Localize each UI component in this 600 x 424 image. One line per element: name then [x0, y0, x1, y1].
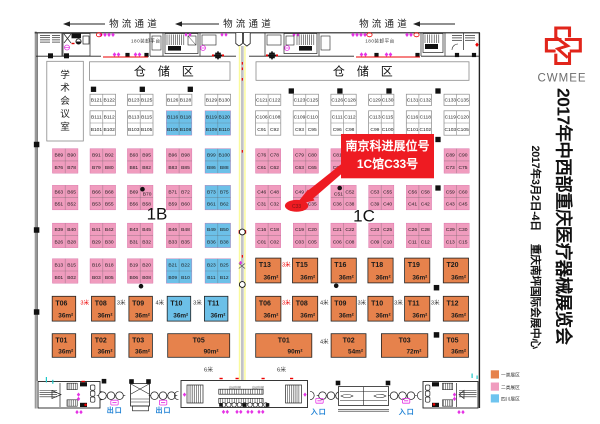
svg-text:B73: B73	[207, 189, 216, 195]
svg-text:36m²: 36m²	[300, 313, 315, 320]
svg-text:T03: T03	[132, 338, 144, 345]
svg-text:B88: B88	[220, 165, 229, 171]
svg-text:B70: B70	[143, 191, 152, 197]
svg-text:C16: C16	[257, 227, 266, 233]
svg-text:C08: C08	[345, 239, 354, 245]
svg-text:C106: C106	[256, 115, 268, 121]
svg-text:B18: B18	[105, 263, 114, 269]
svg-text:6米: 6米	[277, 365, 286, 373]
svg-text:54m²: 54m²	[348, 349, 363, 356]
svg-text:B126: B126	[167, 98, 179, 104]
svg-text:90m²: 90m²	[288, 349, 303, 356]
svg-text:B69: B69	[129, 189, 138, 195]
svg-text:B35: B35	[181, 239, 190, 245]
svg-text:3米: 3米	[80, 298, 89, 306]
svg-text:C29: C29	[446, 227, 455, 233]
svg-text:C26: C26	[408, 227, 417, 233]
svg-text:C105: C105	[457, 127, 469, 133]
svg-text:T15: T15	[296, 262, 308, 269]
svg-text:72m²: 72m²	[406, 349, 421, 356]
svg-text:T18: T18	[371, 262, 383, 269]
svg-text:C126: C126	[331, 98, 343, 104]
svg-text:C109: C109	[294, 115, 306, 121]
svg-text:3米: 3米	[282, 298, 291, 306]
svg-text:B105: B105	[141, 127, 153, 133]
svg-text:C61: C61	[257, 165, 266, 171]
svg-text:C52: C52	[345, 189, 354, 195]
svg-text:C98: C98	[345, 127, 354, 133]
svg-text:C56: C56	[408, 189, 417, 195]
svg-text:二类展区: 二类展区	[501, 384, 520, 391]
svg-text:C11: C11	[408, 239, 417, 245]
svg-text:C12: C12	[421, 239, 430, 245]
svg-text:B60: B60	[181, 202, 190, 208]
svg-text:B02: B02	[67, 275, 76, 281]
svg-text:B80: B80	[105, 165, 114, 171]
svg-text:B81: B81	[129, 165, 138, 171]
svg-text:T10: T10	[371, 300, 383, 307]
svg-text:1C: 1C	[353, 207, 375, 226]
svg-text:C75: C75	[459, 165, 468, 171]
svg-text:C108: C108	[269, 115, 281, 121]
svg-text:C30: C30	[459, 227, 468, 233]
svg-text:B56: B56	[129, 202, 138, 208]
svg-text:B50: B50	[220, 227, 229, 233]
svg-text:B15: B15	[67, 263, 76, 269]
svg-text:B68: B68	[105, 189, 114, 195]
svg-text:C125: C125	[306, 98, 318, 104]
svg-text:C43: C43	[446, 202, 455, 208]
svg-text:B108: B108	[180, 127, 192, 133]
svg-text:自动扶梯: 自动扶梯	[252, 384, 264, 389]
svg-text:90m²: 90m²	[204, 349, 219, 356]
svg-text:C33: C33	[292, 204, 301, 210]
svg-text:180装卸平台: 180装卸平台	[365, 38, 395, 45]
svg-text:C06: C06	[333, 239, 342, 245]
svg-text:C31: C31	[257, 202, 266, 208]
svg-text:B31: B31	[129, 239, 138, 245]
svg-text:B122: B122	[103, 98, 115, 104]
svg-text:B89: B89	[54, 153, 63, 159]
svg-text:B29: B29	[92, 239, 101, 245]
svg-text:C25: C25	[383, 227, 392, 233]
svg-text:B99: B99	[207, 153, 216, 159]
svg-text:B11: B11	[207, 275, 216, 281]
svg-text:南京科进展位号: 南京科进展位号	[345, 138, 429, 153]
svg-text:T05: T05	[447, 338, 459, 345]
svg-text:36m²: 36m²	[135, 313, 150, 320]
svg-text:C48: C48	[270, 189, 279, 195]
svg-text:C65: C65	[308, 165, 317, 171]
svg-text:B21: B21	[168, 263, 177, 269]
svg-text:C49: C49	[295, 189, 304, 195]
svg-text:C03: C03	[295, 239, 304, 245]
svg-text:C32: C32	[270, 202, 279, 208]
svg-text:36m²: 36m²	[98, 313, 113, 320]
svg-text:物流通道: 物流通道	[109, 18, 160, 30]
svg-text:T20: T20	[447, 262, 459, 269]
svg-text:B76: B76	[54, 165, 63, 171]
svg-text:B20: B20	[142, 263, 151, 269]
svg-text:C99: C99	[370, 127, 379, 133]
svg-text:36m²: 36m²	[376, 313, 391, 320]
svg-text:C09: C09	[370, 239, 379, 245]
svg-text:C100: C100	[382, 127, 394, 133]
svg-text:C129: C129	[369, 98, 381, 104]
svg-text:C81: C81	[333, 153, 342, 159]
svg-text:B10: B10	[181, 275, 190, 281]
svg-text:B30: B30	[105, 239, 114, 245]
svg-text:B113: B113	[128, 115, 139, 121]
svg-text:C13: C13	[446, 239, 455, 245]
svg-text:C73: C73	[446, 165, 455, 171]
svg-text:B53: B53	[92, 202, 101, 208]
svg-text:B26: B26	[54, 239, 63, 245]
svg-text:C10: C10	[383, 239, 392, 245]
svg-text:C120: C120	[457, 115, 469, 121]
svg-text:T03: T03	[399, 338, 411, 345]
svg-text:B106: B106	[167, 127, 179, 133]
svg-text:4米: 4米	[320, 298, 329, 306]
svg-text:术: 术	[60, 82, 70, 94]
svg-text:C89: C89	[446, 153, 455, 159]
svg-text:T06: T06	[55, 300, 67, 307]
svg-text:36m²: 36m²	[98, 349, 113, 356]
svg-text:B120: B120	[218, 115, 230, 121]
svg-text:4米: 4米	[320, 338, 329, 346]
svg-text:B78: B78	[67, 165, 76, 171]
svg-text:B41: B41	[92, 227, 101, 233]
svg-text:C132: C132	[419, 98, 431, 104]
svg-text:B101: B101	[91, 127, 103, 133]
svg-text:36m²: 36m²	[451, 274, 466, 281]
svg-text:C112: C112	[344, 115, 356, 121]
svg-text:B48: B48	[181, 227, 190, 233]
svg-text:C18: C18	[270, 227, 279, 233]
svg-text:C135: C135	[457, 98, 469, 104]
svg-text:B03: B03	[92, 275, 101, 281]
svg-text:C19: C19	[295, 227, 304, 233]
svg-text:C116: C116	[407, 115, 419, 121]
svg-text:T09: T09	[132, 300, 144, 307]
svg-text:会: 会	[60, 95, 70, 107]
svg-text:入口: 入口	[398, 408, 415, 416]
svg-text:CWMEE: CWMEE	[537, 73, 586, 85]
svg-text:T02: T02	[95, 338, 107, 345]
svg-text:B119: B119	[206, 115, 217, 121]
svg-text:C90: C90	[459, 153, 468, 159]
svg-text:36m²: 36m²	[376, 274, 391, 281]
svg-text:36m²: 36m²	[263, 274, 278, 281]
svg-text:B100: B100	[218, 153, 230, 159]
svg-text:B22: B22	[181, 263, 190, 269]
svg-text:36m²: 36m²	[300, 274, 315, 281]
svg-text:B72: B72	[181, 189, 190, 195]
svg-text:180装卸平台: 180装卸平台	[131, 38, 161, 45]
svg-text:B109: B109	[206, 127, 218, 133]
svg-text:C28: C28	[421, 227, 430, 233]
svg-text:B61: B61	[207, 202, 216, 208]
svg-text:C110: C110	[307, 115, 319, 121]
svg-text:C119: C119	[445, 115, 457, 121]
svg-text:C53: C53	[370, 189, 379, 195]
svg-text:C21: C21	[333, 227, 342, 233]
svg-text:B82: B82	[142, 165, 151, 171]
svg-text:B86: B86	[207, 165, 216, 171]
svg-text:B65: B65	[67, 189, 76, 195]
svg-text:C80: C80	[308, 153, 317, 159]
svg-text:T19: T19	[408, 262, 420, 269]
svg-text:C91: C91	[257, 127, 266, 133]
svg-text:C111: C111	[332, 115, 343, 121]
svg-text:B110: B110	[219, 127, 230, 133]
svg-text:C131: C131	[407, 98, 419, 104]
svg-text:B123: B123	[128, 98, 140, 104]
svg-text:36m²: 36m²	[173, 313, 188, 320]
svg-text:C113: C113	[369, 115, 381, 121]
svg-text:B40: B40	[67, 227, 76, 233]
svg-text:C101: C101	[407, 127, 419, 133]
svg-text:B63: B63	[54, 189, 63, 195]
svg-text:T10: T10	[170, 300, 182, 307]
svg-text:一类展区: 一类展区	[501, 372, 520, 379]
svg-text:3米: 3米	[117, 298, 126, 306]
svg-text:B13: B13	[54, 263, 63, 269]
svg-text:B38: B38	[220, 239, 229, 245]
svg-text:36m²: 36m²	[339, 313, 354, 320]
svg-text:B09: B09	[168, 275, 177, 281]
svg-text:B55: B55	[105, 202, 114, 208]
svg-text:B116: B116	[167, 115, 178, 121]
svg-text:B46: B46	[168, 227, 177, 233]
svg-text:B92: B92	[105, 153, 114, 159]
svg-text:B115: B115	[141, 115, 152, 121]
svg-text:C96: C96	[333, 127, 342, 133]
svg-text:C63: C63	[295, 165, 304, 171]
svg-text:T01: T01	[278, 338, 290, 345]
svg-text:3米: 3米	[282, 261, 291, 269]
svg-text:C05: C05	[308, 239, 317, 245]
svg-text:物流通道: 物流通道	[359, 18, 410, 30]
svg-text:36m²: 36m²	[412, 313, 427, 320]
svg-text:T06: T06	[259, 300, 271, 307]
svg-text:B71: B71	[168, 189, 177, 195]
svg-text:3米: 3米	[193, 298, 202, 306]
svg-text:C41: C41	[408, 202, 417, 208]
svg-text:B90: B90	[67, 153, 76, 159]
svg-text:B36: B36	[207, 239, 216, 245]
svg-text:T05: T05	[193, 338, 205, 345]
svg-text:36m²: 36m²	[210, 313, 225, 320]
svg-text:B05: B05	[105, 275, 114, 281]
svg-text:3米: 3米	[431, 298, 440, 306]
svg-text:B129: B129	[206, 98, 218, 104]
svg-text:2017年中西部重庆医疗器械展览会: 2017年中西部重庆医疗器械展览会	[554, 88, 574, 345]
svg-text:C95: C95	[308, 127, 317, 133]
svg-text:C60: C60	[459, 189, 468, 195]
svg-text:C46: C46	[257, 189, 266, 195]
svg-text:C35: C35	[308, 202, 317, 208]
svg-text:B28: B28	[67, 239, 76, 245]
svg-text:2017年3月2日-4日 重庆南坪国际会展中心: 2017年3月2日-4日 重庆南坪国际会展中心	[529, 146, 543, 350]
svg-text:B01: B01	[54, 275, 63, 281]
svg-text:C130: C130	[382, 98, 394, 104]
svg-text:C79: C79	[295, 153, 304, 159]
svg-text:自动扶梯: 自动扶梯	[229, 384, 241, 389]
svg-text:T08: T08	[296, 300, 308, 307]
svg-text:B59: B59	[168, 202, 177, 208]
svg-text:B49: B49	[207, 227, 216, 233]
svg-text:仓 储 区: 仓 储 区	[134, 64, 198, 79]
svg-text:C118: C118	[420, 115, 432, 121]
svg-text:C55: C55	[383, 189, 392, 195]
svg-text:3米: 3米	[357, 298, 366, 306]
svg-text:B98: B98	[181, 153, 190, 159]
svg-text:T11: T11	[208, 300, 220, 307]
svg-text:B83: B83	[168, 165, 177, 171]
svg-text:B33: B33	[168, 239, 177, 245]
svg-text:B93: B93	[129, 153, 138, 159]
svg-text:C59: C59	[446, 189, 455, 195]
svg-text:B85: B85	[181, 165, 190, 171]
svg-text:B16: B16	[92, 263, 101, 269]
svg-text:B42: B42	[105, 227, 114, 233]
svg-text:36m²: 36m²	[58, 313, 73, 320]
svg-text:1B: 1B	[147, 205, 168, 224]
svg-text:B62: B62	[220, 202, 229, 208]
svg-text:B79: B79	[92, 165, 101, 171]
svg-text:B52: B52	[67, 202, 76, 208]
svg-text:C36: C36	[333, 202, 342, 208]
svg-text:C22: C22	[345, 227, 354, 233]
svg-text:T08: T08	[95, 300, 107, 307]
svg-text:C121: C121	[256, 98, 268, 104]
svg-text:B118: B118	[180, 115, 191, 121]
svg-text:36m²: 36m²	[135, 349, 150, 356]
svg-text:仓 储 区: 仓 储 区	[333, 64, 397, 79]
svg-text:B130: B130	[218, 98, 230, 104]
svg-text:36m²: 36m²	[339, 274, 354, 281]
svg-text:B95: B95	[142, 153, 151, 159]
svg-text:C42: C42	[421, 202, 430, 208]
svg-text:B96: B96	[168, 153, 177, 159]
svg-text:B45: B45	[142, 227, 151, 233]
svg-text:T16: T16	[334, 262, 346, 269]
svg-text:B75: B75	[220, 189, 229, 195]
svg-text:T01: T01	[55, 338, 67, 345]
svg-text:C92: C92	[270, 127, 279, 133]
svg-text:C20: C20	[308, 227, 317, 233]
svg-text:36m²: 36m²	[412, 274, 427, 281]
svg-text:B19: B19	[129, 263, 138, 269]
svg-text:C02: C02	[270, 239, 279, 245]
svg-text:学: 学	[60, 69, 70, 81]
svg-text:B32: B32	[142, 239, 151, 245]
svg-text:出口: 出口	[107, 406, 123, 415]
svg-text:C102: C102	[419, 127, 431, 133]
svg-text:物流通道: 物流通道	[223, 18, 274, 30]
svg-text:4米: 4米	[155, 298, 164, 306]
svg-text:C01: C01	[257, 239, 266, 245]
svg-text:B121: B121	[91, 98, 103, 104]
svg-text:3米: 3米	[394, 298, 403, 306]
svg-text:B111: B111	[91, 115, 102, 121]
svg-text:B125: B125	[141, 98, 153, 104]
svg-text:C103: C103	[444, 127, 456, 133]
svg-text:T02: T02	[343, 338, 355, 345]
svg-text:B08: B08	[142, 275, 151, 281]
svg-text:B12: B12	[220, 275, 229, 281]
svg-text:C15: C15	[459, 239, 468, 245]
svg-text:C78: C78	[270, 153, 279, 159]
svg-text:C93: C93	[295, 127, 304, 133]
svg-text:出口: 出口	[156, 406, 172, 415]
svg-text:C23: C23	[370, 227, 379, 233]
svg-text:36m²: 36m²	[58, 349, 73, 356]
svg-text:C133: C133	[444, 98, 456, 104]
svg-text:B43: B43	[129, 227, 138, 233]
svg-text:C123: C123	[294, 98, 306, 104]
svg-text:C76: C76	[257, 153, 266, 159]
svg-text:36m²: 36m²	[263, 313, 278, 320]
svg-text:36m²: 36m²	[451, 349, 466, 356]
svg-text:C45: C45	[459, 202, 468, 208]
svg-text:B128: B128	[180, 98, 192, 104]
svg-text:C62: C62	[270, 165, 279, 171]
svg-text:1C馆C33号: 1C馆C33号	[357, 156, 418, 171]
svg-text:T11: T11	[408, 300, 420, 307]
svg-text:T13: T13	[259, 262, 271, 269]
svg-text:C115: C115	[382, 115, 394, 121]
svg-text:B06: B06	[129, 275, 138, 281]
svg-text:B103: B103	[128, 127, 140, 133]
svg-text:C122: C122	[269, 98, 281, 104]
svg-text:C40: C40	[383, 202, 392, 208]
svg-text:36m²: 36m²	[451, 313, 466, 320]
svg-text:B91: B91	[92, 153, 101, 159]
svg-text:C51: C51	[334, 192, 343, 198]
svg-text:C128: C128	[344, 98, 356, 104]
svg-text:B66: B66	[92, 189, 101, 195]
svg-text:B51: B51	[54, 202, 63, 208]
svg-text:T12: T12	[447, 300, 459, 307]
svg-text:B39: B39	[54, 227, 63, 233]
svg-text:B25: B25	[220, 263, 229, 269]
svg-text:B102: B102	[103, 127, 115, 133]
svg-text:6米: 6米	[204, 365, 213, 373]
svg-text:入口: 入口	[310, 408, 327, 416]
svg-text:C58: C58	[421, 189, 430, 195]
svg-text:T09: T09	[334, 300, 346, 307]
svg-text:议: 议	[60, 109, 70, 120]
svg-text:B112: B112	[104, 115, 115, 121]
svg-text:室: 室	[60, 121, 70, 133]
svg-text:B23: B23	[207, 263, 216, 269]
